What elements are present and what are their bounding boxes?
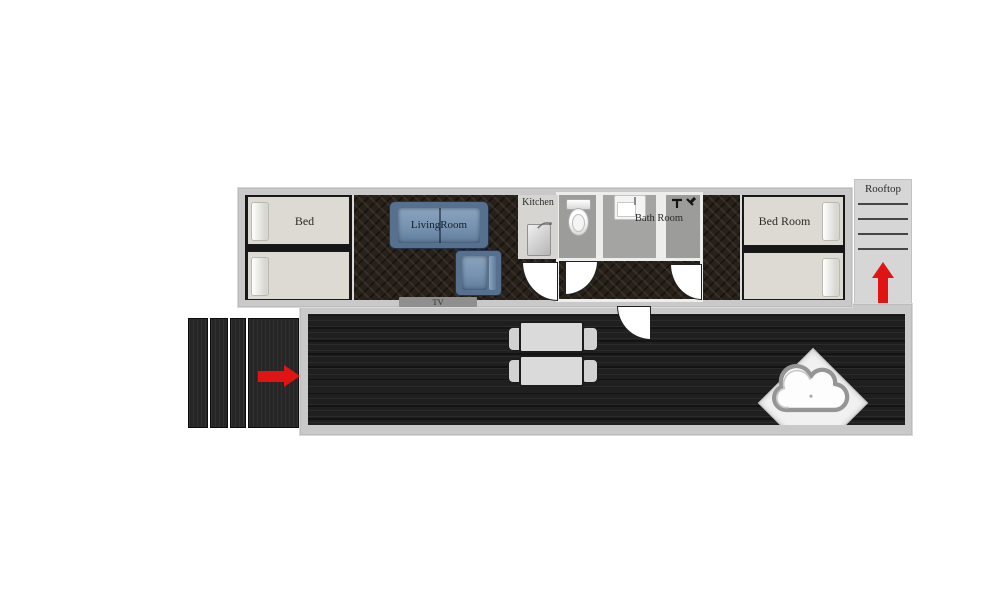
cloud-hot-tub-icon [768, 360, 854, 422]
floor-plan: Rooftop [0, 0, 1000, 613]
pillow [251, 257, 269, 296]
deck-table [519, 355, 584, 387]
shower-stall [666, 195, 700, 258]
room-bed-left: Bed [245, 195, 352, 300]
bath-room-label: Bath Room [618, 214, 700, 225]
room-kitchen: Kitchen [518, 195, 558, 259]
bed: Bed Room [743, 196, 844, 246]
stair-step-line [858, 233, 908, 235]
deck-table [519, 321, 584, 353]
bed-right-label: Bed Room [759, 215, 829, 227]
bed [247, 251, 350, 300]
stair-plank [210, 318, 228, 428]
bed: Bed [247, 196, 350, 245]
tv-unit: TV [399, 297, 477, 307]
shower-icon [670, 197, 696, 211]
stair-step-line [858, 203, 908, 205]
wall [740, 195, 742, 300]
kitchen-label: Kitchen [518, 198, 558, 208]
rooftop-label: Rooftop [854, 184, 912, 195]
sofa-icon: LivingRoom [389, 201, 489, 249]
bed-left-label: Bed [283, 215, 314, 227]
rooftop-stairs: Rooftop [854, 179, 912, 310]
bed [743, 252, 844, 300]
pillow [822, 258, 840, 297]
pillow [822, 202, 840, 241]
living-room-label: LivingRoom [411, 220, 467, 231]
toilet-stall [559, 195, 596, 258]
stair-step-line [858, 248, 908, 250]
deck-floor [308, 314, 905, 425]
wall [352, 195, 354, 300]
room-bed-right: Bed Room [742, 195, 845, 300]
stair-plank [188, 318, 208, 428]
armchair-icon [455, 250, 502, 296]
stair-step-line [858, 218, 908, 220]
stair-plank [230, 318, 246, 428]
pillow [251, 202, 269, 241]
sink-stall [603, 195, 656, 258]
tv-label: TV [432, 298, 443, 307]
